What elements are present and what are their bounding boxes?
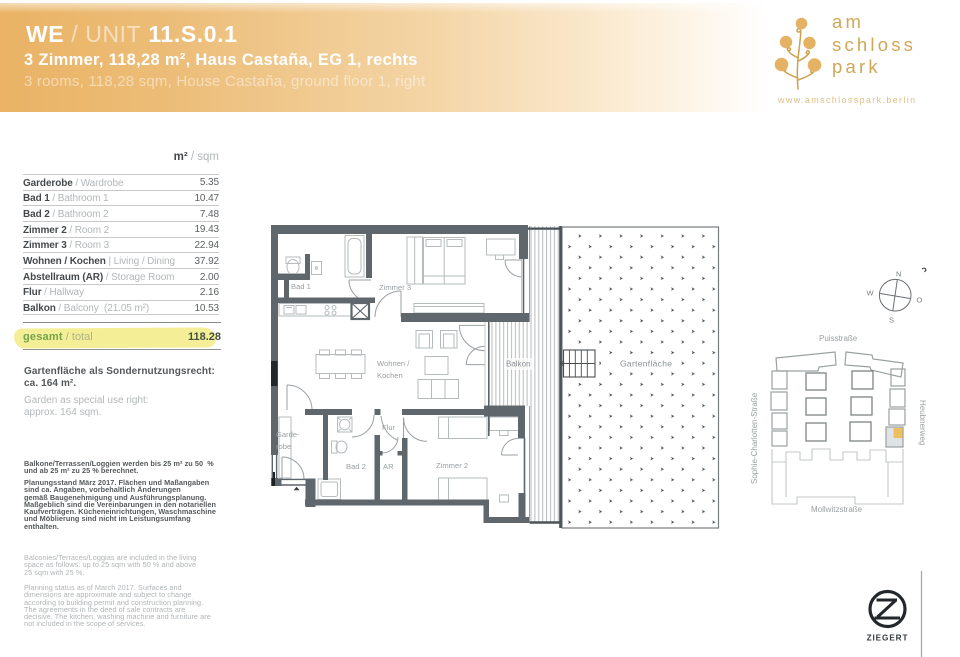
svg-text:Bad 1: Bad 1 (291, 282, 311, 291)
svg-text:Puisstraße: Puisstraße (819, 334, 858, 343)
svg-text:Mollwitzstraße: Mollwitzstraße (811, 505, 863, 514)
svg-text:Zimmer 3: Zimmer 3 (379, 283, 411, 292)
svg-text:Zimmer 2: Zimmer 2 (436, 461, 468, 470)
svg-text:ZIEGERT: ZIEGERT (867, 634, 909, 643)
svg-text:Gartenfläche: Gartenfläche (620, 359, 672, 369)
svg-text:W: W (867, 289, 875, 298)
svg-text:O: O (917, 296, 923, 305)
svg-text:S: S (889, 316, 894, 325)
svg-text:Garde-: Garde- (276, 430, 300, 439)
svg-text:Sophie-Charlotten-Straße: Sophie-Charlotten-Straße (750, 392, 759, 484)
svg-text:Wohnen /: Wohnen / (377, 359, 410, 368)
svg-text:Heubnerweg: Heubnerweg (918, 400, 927, 445)
svg-text:AR: AR (383, 462, 394, 471)
svg-text:N: N (896, 270, 901, 279)
svg-text:Flur: Flur (382, 423, 396, 432)
svg-text:robe: robe (276, 442, 291, 451)
svg-text:Kochen: Kochen (377, 371, 403, 380)
svg-text:Bad 2: Bad 2 (346, 462, 366, 471)
svg-text:Balkon: Balkon (506, 360, 530, 369)
